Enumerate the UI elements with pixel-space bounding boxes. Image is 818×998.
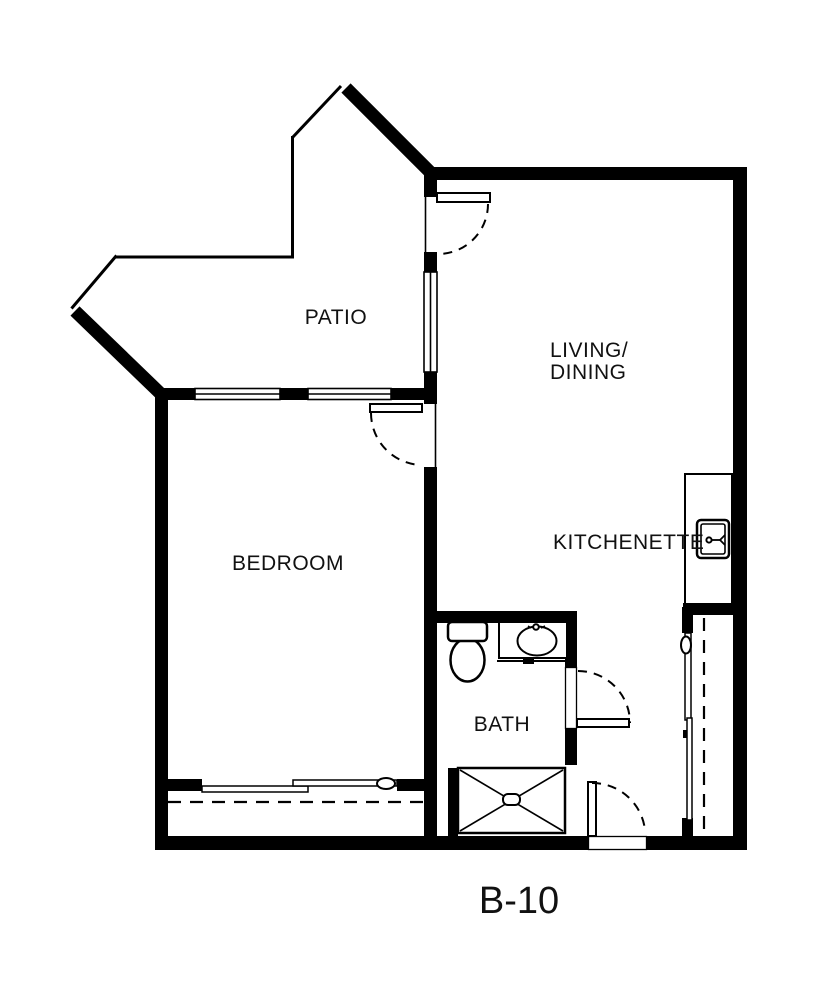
toilet-bowl <box>451 639 485 682</box>
patio-swing-door <box>437 193 490 254</box>
bath-door-opening <box>566 668 577 729</box>
bedroom-closet-sliding-doors <box>202 778 397 792</box>
shower-side-wall <box>448 768 458 836</box>
faucet-icon <box>706 537 711 542</box>
living-dining-label-line2: DINING <box>550 361 627 384</box>
shower-pan <box>458 768 565 833</box>
living-dining-label-line1: LIVING/ <box>550 339 628 362</box>
bedroom-closet-wall-right <box>397 779 424 791</box>
right-exterior-wall <box>733 167 747 850</box>
door-swing-arc <box>592 783 645 830</box>
unit-title: B-10 <box>479 880 559 922</box>
patio-window-right <box>308 389 391 400</box>
door-leaf <box>577 719 629 727</box>
sliding-door-handle <box>681 637 691 654</box>
bathroom-sink-counter <box>497 622 568 664</box>
faucet-icon <box>533 624 539 630</box>
floor-plan-svg: PATIO LIVING/ DINING KITCHENETTE BEDROOM… <box>0 0 818 998</box>
vanity-pull <box>523 658 534 664</box>
bedroom-closet-wall-left <box>168 779 202 791</box>
shower-drain <box>503 794 520 805</box>
entry-threshold <box>589 837 647 850</box>
door-swing-arc <box>578 671 630 723</box>
bath-label: BATH <box>474 713 530 736</box>
entry-swing-door <box>588 782 647 850</box>
kitchenette-label: KITCHENETTE <box>553 531 704 554</box>
door-swing-arc <box>438 204 488 254</box>
patio-railing-lower-diagonal <box>72 256 117 309</box>
top-exterior-wall <box>425 167 747 180</box>
door-leaf <box>588 782 596 836</box>
door-leaf <box>437 193 490 202</box>
door-leaf <box>370 404 422 412</box>
bedroom-swing-door <box>370 404 422 465</box>
patio-side-window <box>424 272 437 372</box>
sliding-door-notch <box>683 730 687 738</box>
bottom-exterior-wall <box>155 836 747 850</box>
patio-lower-diagonal-wall <box>75 311 163 396</box>
sink-basin <box>518 627 557 656</box>
toilet <box>448 622 487 682</box>
patio-railing-upper-diagonal <box>293 86 342 138</box>
patio-label: PATIO <box>305 306 367 329</box>
patio-railing-outline <box>72 86 342 309</box>
floor-plan: PATIO LIVING/ DINING KITCHENETTE BEDROOM… <box>0 0 818 998</box>
bath-swing-door <box>577 671 630 727</box>
sliding-door-panel <box>202 786 308 792</box>
hall-closet-top-block <box>682 607 693 633</box>
patio-upper-diagonal-wall <box>346 88 431 173</box>
sliding-door-panel <box>687 718 692 820</box>
sliding-door-handle <box>377 778 395 789</box>
toilet-tank <box>448 622 487 641</box>
hall-closet-sliding-doors <box>681 633 692 820</box>
patio-window-left <box>195 389 280 400</box>
bedroom-label: BEDROOM <box>232 552 344 575</box>
door-swing-arc <box>371 413 421 465</box>
central-interior-wall <box>424 170 437 836</box>
left-exterior-wall <box>155 390 168 850</box>
